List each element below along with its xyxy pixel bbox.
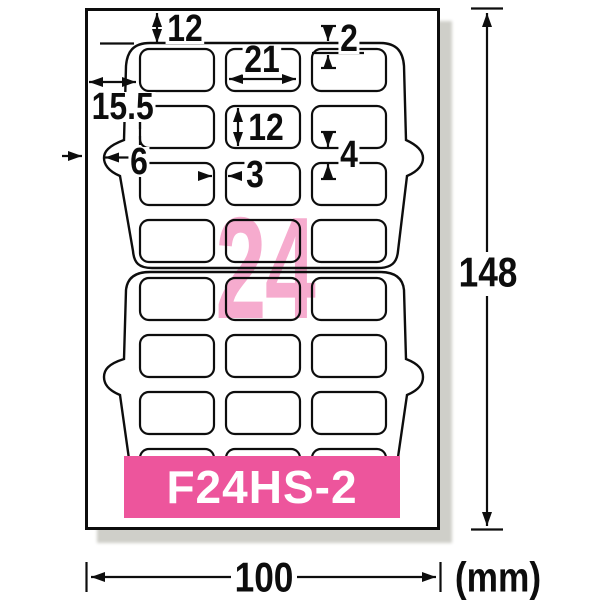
- dim-label-width-label: 21: [243, 45, 282, 75]
- dim-col-gap-label: 3: [244, 160, 265, 190]
- dim-left-margin-label: 15.5: [90, 92, 155, 122]
- label-cell: [312, 220, 386, 262]
- product-code-label: F24HS-2: [166, 464, 357, 510]
- label-cell: [312, 278, 386, 320]
- label-cell: [140, 49, 214, 91]
- dim-top-margin-label: 12: [166, 14, 205, 44]
- label-cell: [140, 335, 214, 377]
- label-cell: [140, 220, 214, 262]
- label-cell: [226, 220, 300, 262]
- dim-notch-label: 6: [128, 147, 149, 177]
- label-cell: [226, 278, 300, 320]
- label-cell: [226, 392, 300, 434]
- label-sheet-diagram: 24: [0, 0, 600, 600]
- label-cell: [312, 392, 386, 434]
- label-cell: [312, 335, 386, 377]
- dim-sheet-width-label: 100: [233, 561, 295, 594]
- label-cell: [140, 392, 214, 434]
- product-code-banner: F24HS-2: [124, 456, 400, 518]
- dim-row-gap-label: 4: [338, 140, 359, 170]
- die-cut-group-bottom: [104, 272, 423, 466]
- unit-label: (mm): [453, 561, 543, 594]
- dim-label-height-label: 12: [247, 113, 286, 143]
- label-cell: [140, 278, 214, 320]
- dim-outline-gap-label: 2: [338, 24, 359, 54]
- dim-sheet-height-label: 148: [457, 256, 519, 289]
- label-cell: [140, 163, 214, 205]
- label-cell: [226, 335, 300, 377]
